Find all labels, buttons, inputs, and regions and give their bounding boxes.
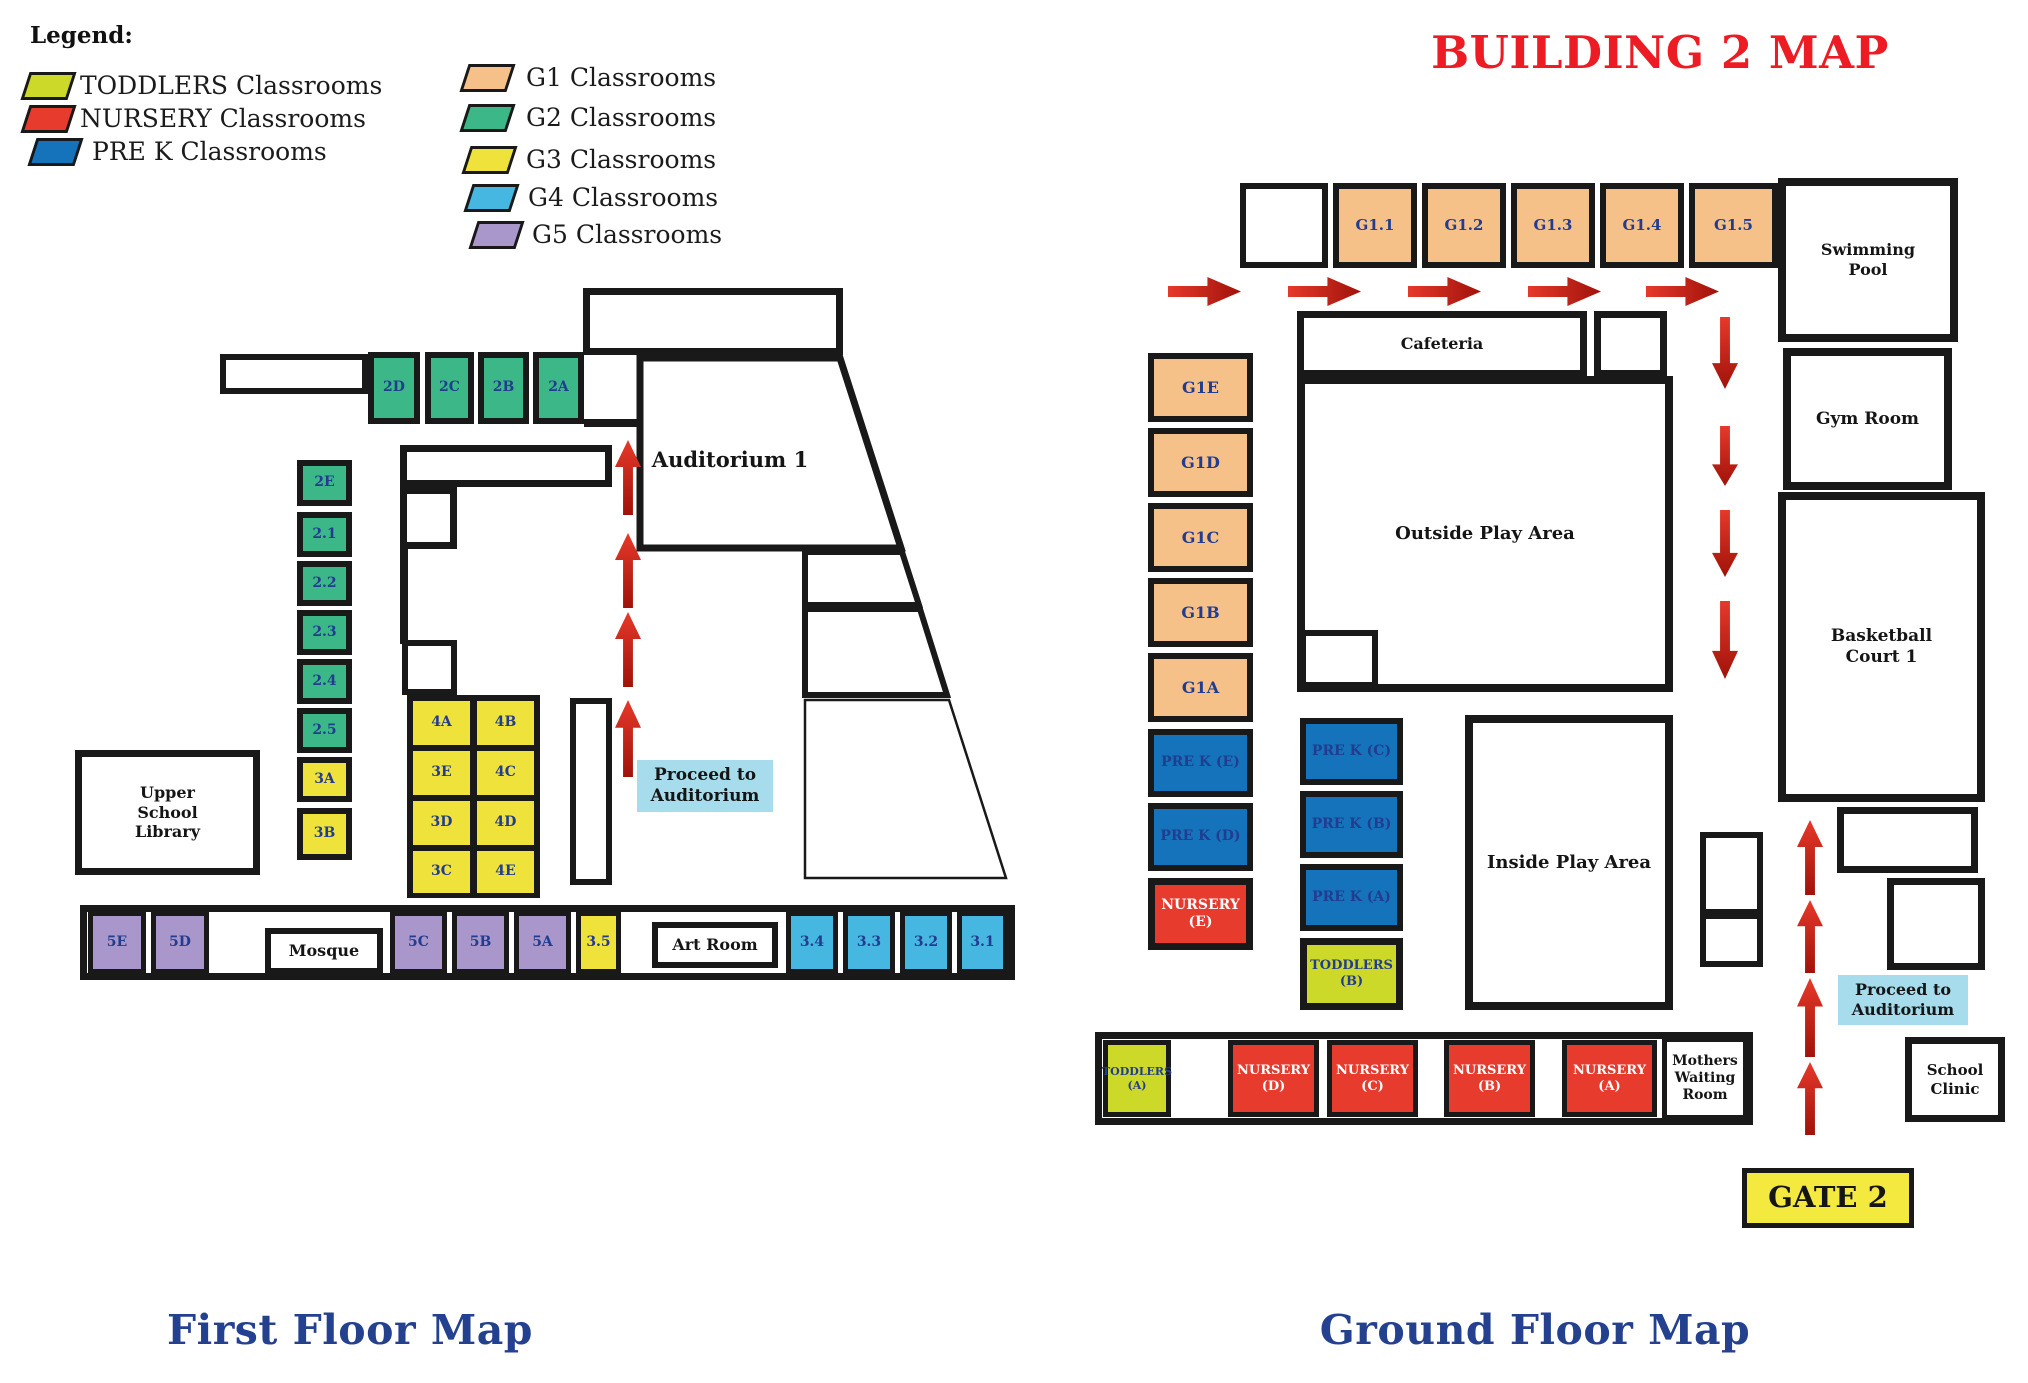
utility-room-1 [1837, 807, 1978, 873]
stage-strip-1-outline [805, 552, 919, 605]
room-5a: 5A [514, 911, 571, 974]
school-clinic-label: School [1927, 1061, 1984, 1079]
swimming-pool-label: Swimming [1821, 240, 1915, 260]
mothers-waiting-room-label: Mothers [1672, 1053, 1738, 1070]
room-3a-label: 3A [314, 771, 335, 788]
legend-title: Legend: [30, 22, 133, 49]
room-2-3-label: 2.3 [312, 624, 336, 641]
proceed-note-label: Proceed to [654, 765, 756, 786]
room-3-3-label: 3.3 [857, 934, 881, 951]
room-2-3: 2.3 [297, 610, 352, 655]
room-5b-label: 5B [470, 934, 492, 951]
room-g1e: G1E [1148, 353, 1253, 422]
room-3-5: 3.5 [576, 911, 621, 974]
corridor-stub [220, 354, 368, 394]
utility-room-2 [1887, 878, 1985, 970]
legend-g3-swatch [461, 146, 517, 174]
small-room-1 [1700, 832, 1763, 915]
room-4a-label: 4A [431, 714, 452, 731]
legend-g3-label: G3 Classrooms [526, 145, 716, 174]
room-4a: 4A [413, 701, 470, 745]
room-nursery-e-label: NURSERY [1161, 897, 1240, 914]
legend-g5-swatch [468, 221, 524, 249]
mid-room-b [402, 640, 457, 695]
room-g1-4-label: G1.4 [1623, 216, 1662, 234]
ground-floor-title: Ground Floor Map [1255, 1306, 1815, 1354]
room-toddlers-a: TODDLERS(A) [1103, 1040, 1171, 1117]
room-2-2: 2.2 [297, 561, 352, 606]
room-2-2-label: 2.2 [312, 575, 336, 592]
proceed-note: Proceed toAuditorium [637, 760, 773, 812]
building-title: BUILDING 2 MAP [1390, 26, 1930, 79]
legend-g2-label: G2 Classrooms [526, 103, 716, 132]
room-nursery-d-label: (D) [1262, 1079, 1286, 1095]
legend-g1-swatch [459, 64, 515, 92]
room-toddlers-a-label: TODDLERS [1102, 1065, 1172, 1078]
upper-hall [583, 288, 843, 355]
room-5c: 5C [390, 911, 447, 974]
mothers-waiting-room-label: Waiting [1675, 1070, 1736, 1087]
room-4c: 4C [477, 751, 534, 795]
room-3-5-label: 3.5 [586, 934, 610, 951]
room-5d: 5D [151, 911, 209, 974]
room-5e: 5E [88, 911, 146, 974]
room-2-5: 2.5 [297, 708, 352, 753]
room-4c-label: 4C [495, 764, 516, 781]
gym-room-label: Gym Room [1816, 409, 1919, 430]
room-2-1-label: 2.1 [312, 526, 336, 543]
room-prek-a: PRE K (A) [1300, 864, 1403, 931]
room-nursery-e-label: (E) [1189, 914, 1213, 931]
room-prek-d-label: PRE K (D) [1160, 828, 1240, 845]
room-nursery-c-label: NURSERY [1336, 1063, 1409, 1079]
room-nursery-e: NURSERY(E) [1148, 878, 1253, 950]
top-hall [1240, 183, 1328, 268]
room-3d-label: 3D [431, 814, 453, 831]
mid-hall [400, 445, 612, 487]
gym-room: Gym Room [1783, 348, 1952, 490]
auditorium-label: Auditorium 1 [640, 447, 820, 473]
legend-g1-label: G1 Classrooms [526, 63, 716, 92]
cafeteria: Cafeteria [1297, 311, 1587, 377]
legend-toddlers-label: TODDLERS Classrooms [80, 71, 382, 100]
gate-2: GATE 2 [1742, 1168, 1914, 1228]
room-2d-label: 2D [383, 379, 405, 396]
room-prek-a-label: PRE K (A) [1312, 889, 1391, 906]
room-toddlers-a-label: (A) [1128, 1079, 1147, 1092]
room-g1e-label: G1E [1182, 378, 1219, 398]
room-g1-3-label: G1.3 [1534, 216, 1573, 234]
room-3c-label: 3C [431, 863, 452, 880]
cafeteria-label: Cafeteria [1401, 334, 1484, 354]
room-2b-label: 2B [493, 379, 515, 396]
upper-school-library-label: School [137, 803, 197, 823]
room-3b-label: 3B [314, 825, 336, 842]
room-g1-1-label: G1.1 [1356, 216, 1395, 234]
corridor-wall [584, 419, 637, 427]
room-g1d: G1D [1148, 428, 1253, 497]
room-g1c: G1C [1148, 503, 1253, 572]
room-4e-label: 4E [495, 863, 515, 880]
room-5a-label: 5A [532, 934, 553, 951]
room-g1-4: G1.4 [1600, 183, 1684, 268]
room-g1-1: G1.1 [1333, 183, 1417, 268]
room-g1-3: G1.3 [1511, 183, 1595, 268]
room-2-5-label: 2.5 [312, 722, 336, 739]
room-3-3: 3.3 [843, 911, 895, 974]
room-nursery-a-label: NURSERY [1573, 1063, 1646, 1079]
mothers-waiting-room-label: Room [1682, 1087, 1727, 1104]
room-2-4: 2.4 [297, 659, 352, 704]
swimming-pool-label: Pool [1848, 260, 1887, 280]
room-g1c-label: G1C [1182, 528, 1220, 548]
building-2-map-page: Legend: TODDLERS ClassroomsNURSERY Class… [0, 0, 2028, 1383]
proceed-note-label: Auditorium [651, 786, 760, 807]
inside-play-area-label: Inside Play Area [1487, 852, 1651, 874]
room-toddlers-b-label: (B) [1340, 974, 1363, 990]
room-2-1: 2.1 [297, 512, 352, 557]
room-prek-c-label: PRE K (C) [1312, 743, 1391, 760]
legend-g2-swatch [459, 104, 515, 132]
room-toddlers-b: TODDLERS(B) [1300, 938, 1403, 1010]
proceed-note-label: Auditorium [1852, 1000, 1954, 1020]
room-nursery-b: NURSERY(B) [1444, 1040, 1535, 1117]
upper-school-library-label: Upper [140, 783, 195, 803]
room-2e: 2E [297, 460, 352, 506]
room-3b: 3B [297, 808, 352, 860]
room-4d-label: 4D [495, 814, 517, 831]
room-2-4-label: 2.4 [312, 673, 336, 690]
outside-play-area-label: Outside Play Area [1395, 523, 1575, 545]
room-3-2-label: 3.2 [914, 934, 938, 951]
room-g1-2-label: G1.2 [1445, 216, 1484, 234]
room-g1-2: G1.2 [1422, 183, 1506, 268]
legend-prek-swatch [27, 138, 83, 166]
room-2d: 2D [368, 352, 420, 424]
legend-g4-label: G4 Classrooms [528, 183, 718, 212]
proceed-note: Proceed toAuditorium [1838, 975, 1968, 1025]
room-g1-5-label: G1.5 [1714, 216, 1753, 234]
upper-school-library: UpperSchoolLibrary [75, 750, 260, 875]
mothers-waiting-room: MothersWaitingRoom [1662, 1037, 1748, 1120]
outside-notch-room [1300, 630, 1378, 688]
room-3a: 3A [297, 757, 352, 802]
room-3-1-label: 3.1 [970, 934, 994, 951]
room-nursery-a: NURSERY(A) [1562, 1040, 1657, 1117]
inside-play-area: Inside Play Area [1465, 715, 1673, 1010]
room-prek-e-label: PRE K (E) [1161, 754, 1240, 771]
first-floor-title: First Floor Map [95, 1306, 605, 1354]
legend-g4-swatch [463, 184, 519, 212]
legend-toddlers-swatch [20, 72, 76, 100]
room-nursery-b-label: NURSERY [1453, 1063, 1526, 1079]
room-prek-d: PRE K (D) [1148, 803, 1253, 871]
room-nursery-c: NURSERY(C) [1327, 1040, 1418, 1117]
room-4d: 4D [477, 801, 534, 845]
room-prek-b-label: PRE K (B) [1312, 816, 1392, 833]
auditorium-label-label: Auditorium 1 [652, 447, 808, 473]
basketball-court-label: Court 1 [1846, 647, 1918, 668]
room-g1-5: G1.5 [1689, 183, 1778, 268]
art-room: Art Room [652, 922, 778, 968]
room-4b-label: 4B [495, 714, 517, 731]
room-toddlers-b-label: TODDLERS [1310, 958, 1393, 974]
hall-strip [570, 698, 612, 885]
gate-2-label: GATE 2 [1768, 1180, 1888, 1215]
side-yard-outline [805, 700, 1006, 878]
room-nursery-c-label: (C) [1361, 1079, 1384, 1095]
mosque: Mosque [265, 928, 383, 974]
room-3-1: 3.1 [957, 911, 1008, 974]
room-2b: 2B [478, 352, 529, 424]
room-g1b-label: G1B [1181, 603, 1219, 623]
legend-nursery-swatch [20, 105, 76, 133]
legend-nursery-label: NURSERY Classrooms [80, 104, 366, 133]
cafeteria-side-room [1594, 311, 1667, 377]
room-2a: 2A [533, 352, 584, 424]
room-prek-e: PRE K (E) [1148, 729, 1253, 797]
room-5e-label: 5E [107, 934, 127, 951]
basketball-court-label: Basketball [1831, 626, 1932, 647]
room-2e-label: 2E [314, 474, 334, 491]
room-nursery-b-label: (B) [1478, 1079, 1501, 1095]
mosque-label: Mosque [289, 941, 359, 961]
room-3e-label: 3E [431, 764, 451, 781]
room-5b: 5B [452, 911, 509, 974]
room-nursery-a-label: (A) [1598, 1079, 1620, 1095]
room-4e: 4E [477, 851, 534, 893]
room-nursery-d: NURSERY(D) [1228, 1040, 1319, 1117]
room-3-4-label: 3.4 [800, 934, 824, 951]
room-g1a: G1A [1148, 653, 1253, 722]
school-clinic-label: Clinic [1930, 1080, 1979, 1098]
mid-wall [400, 547, 408, 644]
proceed-note-label: Proceed to [1855, 980, 1951, 1000]
legend-g5-label: G5 Classrooms [532, 220, 722, 249]
mid-room-a [400, 487, 457, 549]
room-g1b: G1B [1148, 578, 1253, 647]
upper-school-library-label: Library [135, 822, 200, 842]
room-3d: 3D [413, 801, 470, 845]
room-g1d-label: G1D [1181, 453, 1220, 473]
room-2a-label: 2A [548, 379, 569, 396]
room-5c-label: 5C [408, 934, 429, 951]
room-3c: 3C [413, 851, 470, 893]
room-nursery-d-label: NURSERY [1237, 1063, 1310, 1079]
room-4b: 4B [477, 701, 534, 745]
room-g1a-label: G1A [1182, 678, 1219, 698]
room-prek-c: PRE K (C) [1300, 718, 1403, 785]
room-3-2: 3.2 [900, 911, 952, 974]
basketball-court: BasketballCourt 1 [1778, 492, 1985, 802]
room-3-4: 3.4 [786, 911, 838, 974]
room-prek-b: PRE K (B) [1300, 791, 1403, 858]
room-2c-label: 2C [439, 379, 460, 396]
small-room-2 [1700, 913, 1763, 967]
room-3e: 3E [413, 751, 470, 795]
room-2c: 2C [425, 352, 474, 424]
stage-strip-2-outline [805, 609, 947, 695]
school-clinic: SchoolClinic [1905, 1037, 2005, 1122]
art-room-label: Art Room [672, 935, 757, 955]
room-5d-label: 5D [169, 934, 191, 951]
swimming-pool: SwimmingPool [1778, 178, 1958, 342]
legend-prek-label: PRE K Classrooms [92, 137, 327, 166]
